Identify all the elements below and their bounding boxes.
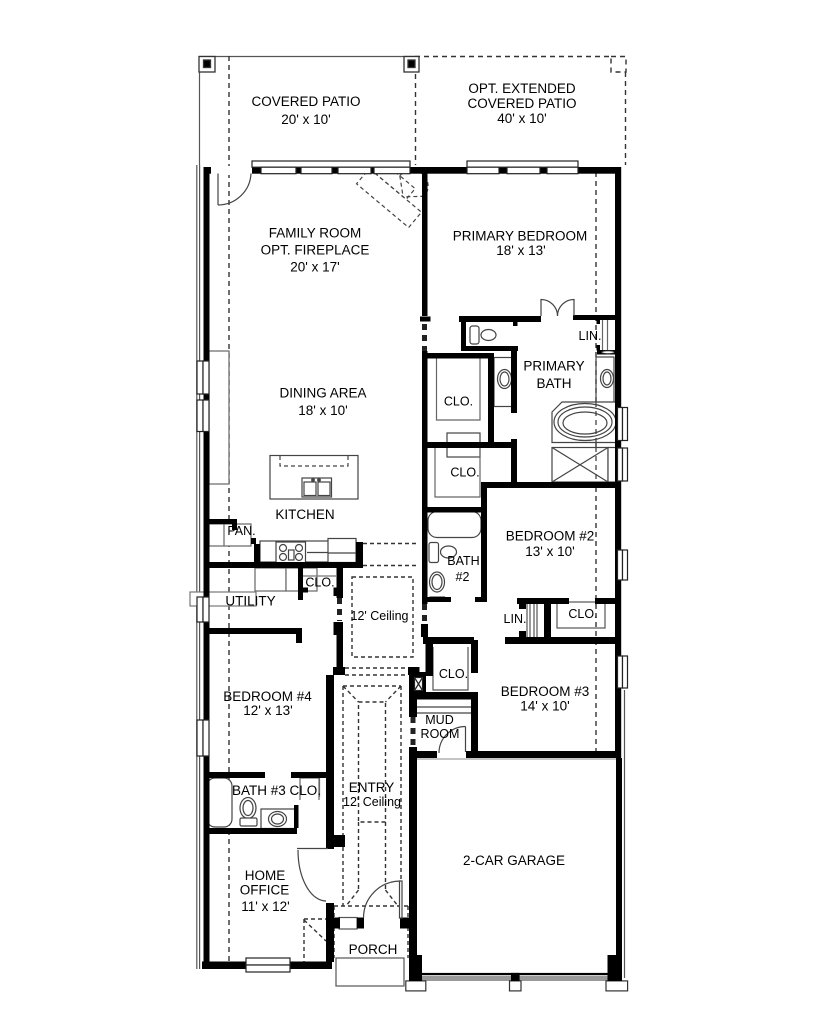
svg-text:CLO.: CLO. <box>439 667 468 681</box>
svg-text:CLO.: CLO. <box>305 576 334 590</box>
svg-text:PRIMARY BEDROOM: PRIMARY BEDROOM <box>453 229 588 244</box>
svg-text:12' Ceiling: 12' Ceiling <box>351 609 409 623</box>
svg-text:OPT. EXTENDED: OPT. EXTENDED <box>468 81 576 96</box>
svg-text:18' x 13': 18' x 13' <box>496 243 545 258</box>
svg-text:ROOM: ROOM <box>421 727 460 741</box>
svg-text:13' x 10': 13' x 10' <box>525 544 574 559</box>
svg-text:BATH #3 CLO.: BATH #3 CLO. <box>232 783 321 798</box>
svg-text:40' x 10': 40' x 10' <box>497 111 546 126</box>
svg-text:BEDROOM #2: BEDROOM #2 <box>506 529 595 544</box>
svg-text:BEDROOM #4: BEDROOM #4 <box>223 689 312 704</box>
svg-text:OPT. FIREPLACE: OPT. FIREPLACE <box>261 243 370 258</box>
svg-text:MUD: MUD <box>425 713 453 727</box>
svg-text:DINING AREA: DINING AREA <box>279 386 366 401</box>
svg-text:#2: #2 <box>456 570 470 584</box>
svg-text:12' x 13': 12' x 13' <box>243 703 292 718</box>
svg-text:KITCHEN: KITCHEN <box>275 507 334 522</box>
svg-text:HOME: HOME <box>245 868 286 883</box>
svg-text:LIN.: LIN. <box>579 329 602 343</box>
svg-text:14' x 10': 14' x 10' <box>520 699 569 714</box>
svg-text:OFFICE: OFFICE <box>240 883 290 898</box>
svg-text:FAMILY ROOM: FAMILY ROOM <box>269 226 362 241</box>
svg-text:2-CAR GARAGE: 2-CAR GARAGE <box>463 853 565 868</box>
svg-text:LIN.: LIN. <box>504 612 527 626</box>
svg-text:CLO.: CLO. <box>444 395 473 409</box>
svg-text:12' Ceiling: 12' Ceiling <box>343 795 401 809</box>
svg-text:BEDROOM #3: BEDROOM #3 <box>501 684 590 699</box>
svg-text:20' x 17': 20' x 17' <box>290 260 339 275</box>
svg-text:CLO.: CLO. <box>568 607 597 621</box>
svg-text:BATH: BATH <box>536 376 571 391</box>
svg-text:11' x 12': 11' x 12' <box>241 899 289 914</box>
svg-text:PRIMARY: PRIMARY <box>523 359 584 374</box>
svg-text:18' x 10': 18' x 10' <box>298 403 347 418</box>
svg-text:COVERED PATIO: COVERED PATIO <box>251 94 360 109</box>
svg-text:UTILITY: UTILITY <box>225 594 275 609</box>
svg-text:PORCH: PORCH <box>349 942 398 957</box>
svg-text:COVERED PATIO: COVERED PATIO <box>467 96 576 111</box>
svg-text:PAN.: PAN. <box>227 524 255 538</box>
svg-text:ENTRY: ENTRY <box>349 780 395 795</box>
svg-text:BATH: BATH <box>447 554 479 568</box>
svg-text:20' x 10': 20' x 10' <box>281 112 330 127</box>
svg-text:CLO.: CLO. <box>450 466 479 480</box>
